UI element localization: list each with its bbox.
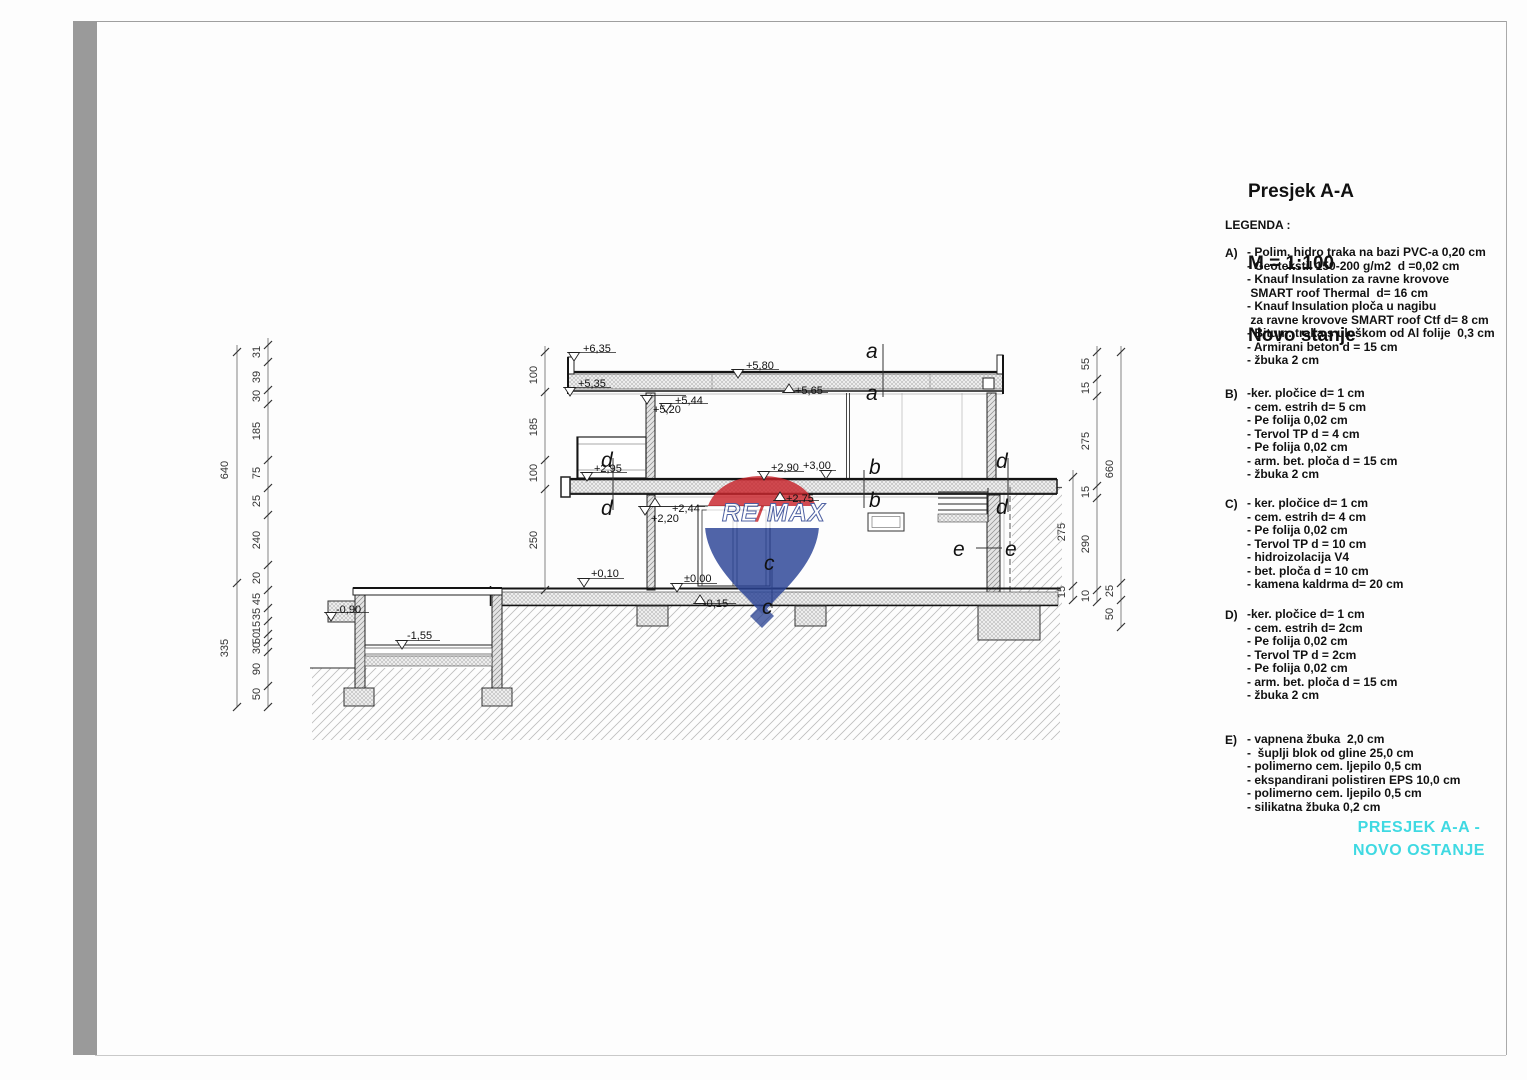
footing xyxy=(795,606,826,626)
section-letter: a xyxy=(866,382,878,405)
footing xyxy=(978,606,1040,640)
section-letter: b xyxy=(869,489,881,512)
dimension-label: 90 xyxy=(251,663,263,675)
dimension-label: 290 xyxy=(1080,535,1092,553)
dimension-label: 100 xyxy=(528,366,540,384)
section-letter: c xyxy=(764,552,775,575)
elevation-marker-triangle xyxy=(579,579,590,588)
section-letter: e xyxy=(1005,538,1017,561)
elevation-label: -1,55 xyxy=(407,630,432,642)
elevation-label: +5,80 xyxy=(746,360,774,372)
dimension-label: 15 xyxy=(1080,486,1092,498)
section-letter: b xyxy=(869,456,881,479)
elevation-label: +2,90 xyxy=(771,462,799,474)
dimension-label: 39 xyxy=(251,371,263,383)
section-letter: a xyxy=(866,340,878,363)
footing xyxy=(637,606,668,626)
elevation-label: +5,20 xyxy=(653,404,681,416)
elevation-label: -0,15 xyxy=(703,598,728,610)
section-letter: d xyxy=(996,496,1009,519)
dimension-label: 10 xyxy=(1080,590,1092,602)
section-letter: e xyxy=(953,538,965,561)
section-letter: d xyxy=(996,450,1009,473)
dimension-label: 30 xyxy=(251,642,263,654)
dimension-label: 25 xyxy=(1104,585,1116,597)
dimension-label: 55 xyxy=(1080,358,1092,370)
dimension-label: 20 xyxy=(251,572,263,584)
dimension-label: 15 xyxy=(1080,382,1092,394)
elevation-label: +2,20 xyxy=(651,513,679,525)
dimension-label: 275 xyxy=(1056,523,1068,541)
footing xyxy=(482,688,512,706)
dimension-label: 35 xyxy=(251,608,263,620)
dimension-label: 50 xyxy=(1104,608,1116,620)
elevation-label: +6,35 xyxy=(583,343,611,355)
dimension-label: 15 xyxy=(251,621,263,633)
section-letter: d xyxy=(601,449,614,472)
dimension-label: 31 xyxy=(251,346,263,358)
dimension-label: 25 xyxy=(251,495,263,507)
section-letter: c xyxy=(762,596,773,619)
dimension-label: 50 xyxy=(251,688,263,700)
wall-niche xyxy=(868,513,904,531)
footing xyxy=(344,688,374,706)
dimension-label: 185 xyxy=(528,418,540,436)
dimension-label: 660 xyxy=(1104,460,1116,478)
dimension-label: 30 xyxy=(251,390,263,402)
elevation-label: -0,90 xyxy=(336,604,361,616)
section-letter: d xyxy=(601,497,614,520)
dimension-label: 640 xyxy=(219,461,231,479)
dimension-label: 185 xyxy=(251,422,263,440)
dimension-label: 75 xyxy=(251,467,263,479)
elevation-label: +0,10 xyxy=(591,568,619,580)
roof-slab xyxy=(568,355,1003,394)
elevation-label: +3,00 xyxy=(803,460,831,472)
section-drawing: RE / MAX 6403353139301857525240204535155… xyxy=(0,0,1527,1080)
remax-text-re: RE xyxy=(722,499,759,527)
dimension-label: 275 xyxy=(1080,432,1092,450)
ground-hatch xyxy=(310,487,1062,740)
dimension-label: 335 xyxy=(219,639,231,657)
dimension-label: 15 xyxy=(1056,586,1068,598)
elevation-label: +5,65 xyxy=(795,385,823,397)
dimension-label: 45 xyxy=(251,593,263,605)
elevation-label: +5,35 xyxy=(578,378,606,390)
elevation-label: ±0,00 xyxy=(684,573,711,585)
elevation-label: +2,75 xyxy=(786,493,814,505)
dimension-label: 250 xyxy=(528,531,540,549)
dimension-label: 100 xyxy=(528,464,540,482)
dimension-label: 240 xyxy=(251,531,263,549)
